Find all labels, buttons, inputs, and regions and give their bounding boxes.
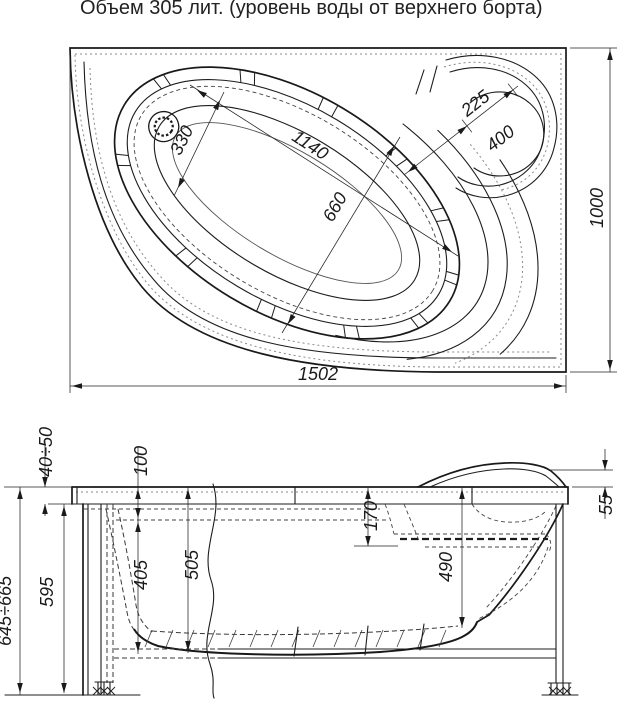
dimension-arrowhead	[17, 489, 23, 499]
dimension-arrowhead	[607, 360, 613, 370]
bottom-hatch-tick	[208, 630, 215, 647]
bottom-hatch-tick	[145, 630, 152, 647]
dimension-arrowhead	[135, 489, 141, 499]
bowl-segment-tick	[417, 314, 430, 324]
bowl-segment-tick	[235, 70, 247, 83]
bottom-hatch-tick	[250, 630, 257, 647]
dim-depth-at-drain-end: 490	[436, 552, 456, 582]
dim-bowl-width: 660	[319, 189, 351, 225]
channel-arc-dotted	[370, 144, 576, 375]
bowl-segment-tick	[317, 97, 325, 109]
dimension-arrowhead	[459, 617, 465, 627]
bowl-segment-tick	[151, 79, 164, 89]
dimension-arrowhead	[503, 88, 514, 99]
bowl-rim-outer	[67, 11, 506, 395]
bowl-segment-tick	[161, 74, 174, 85]
dim-overall-length: 1502	[298, 364, 338, 384]
dimension-arrowhead	[607, 50, 613, 60]
dim-seat-depth: 170	[361, 501, 381, 531]
bottom-hatch-tick	[397, 630, 404, 647]
bathtub-technical-drawing: Объем 305 лит. (уровень воды от верхнего…	[0, 0, 624, 704]
bottom-hatch-tick	[313, 630, 320, 647]
bottom-hatch-tick	[229, 630, 236, 647]
dim-body-height: 595	[37, 576, 57, 607]
headrest-hump-inner	[430, 469, 559, 487]
bowl-segment-tick	[352, 326, 365, 339]
dimension-arrowhead	[602, 460, 608, 470]
bowl-segment-tick	[331, 105, 338, 116]
bottom-hatch-tick	[376, 630, 383, 647]
headrest-pocket-hidden	[472, 504, 546, 522]
bowl-segment-tick	[115, 149, 128, 160]
bowl-bottom-hidden	[152, 626, 458, 635]
bowl-segment-tick	[446, 269, 458, 278]
dimension-arrowhead	[459, 489, 465, 499]
bowl-segment-ticks	[78, 17, 504, 393]
saddle-seam-2	[430, 66, 437, 92]
drawing-canvas: Объем 305 лит. (уровень воды от верхнего…	[0, 0, 624, 704]
dim-headrest-height: 55	[596, 494, 616, 515]
feet-hatch	[93, 687, 571, 695]
dimension-arrowhead	[61, 506, 67, 516]
dimension-arrowhead	[602, 487, 608, 497]
dim-bowl-length: 1140	[289, 126, 332, 164]
dimension-arrowhead	[365, 489, 371, 499]
bowl-segment-tick	[118, 160, 131, 171]
pocket-outer-dotted	[444, 62, 549, 190]
break-wave-line	[207, 484, 216, 698]
bowl-waterline	[95, 38, 479, 367]
bowl-segment-tick	[249, 72, 260, 85]
top-view-dimensions: 1140 330 660 225 400 1000 1502	[70, 48, 617, 393]
dim-overall-width: 1000	[587, 188, 607, 228]
dimension-arrowhead	[185, 489, 191, 499]
seat-front-hidden-1	[385, 504, 394, 534]
dimension-arrowhead	[365, 536, 371, 546]
bowl-segment-tick	[408, 318, 421, 328]
dimension-arrowhead	[61, 683, 67, 693]
bowl-segment-tick	[188, 256, 198, 269]
left-foot	[95, 682, 113, 695]
top-view: 1140 330 660 225 400 1000 1502	[67, 0, 617, 434]
dim-headrest-inner: 225	[457, 86, 495, 121]
dimension-arrowhead	[135, 642, 141, 652]
dimension-arrowhead	[42, 504, 48, 514]
dim-overall-height: 645÷665	[0, 575, 15, 646]
headrest-pocket	[416, 56, 557, 198]
channel-arc-1	[292, 124, 536, 389]
bowl-segment-tick	[255, 299, 263, 311]
seat-to-bottom-hidden	[478, 547, 548, 619]
drawing-title: Объем 305 лит. (уровень воды от верхнего…	[80, 0, 543, 19]
bottom-seam-2	[365, 626, 368, 655]
dimension-arrowhead	[42, 477, 48, 487]
tub-outer-contour	[70, 48, 566, 372]
bottom-hatch-tick	[334, 630, 341, 647]
tub-right-wall	[477, 504, 563, 622]
bowl-floor	[149, 91, 425, 314]
dim-total-depth: 505	[182, 549, 202, 580]
dimension-arrowhead	[554, 383, 564, 389]
bowl-segment-tick	[445, 278, 457, 286]
seat-front-hidden-2	[404, 504, 419, 541]
dimension-arrowhead	[442, 244, 453, 254]
dimension-arrowhead	[17, 683, 23, 693]
dim-drain-offset: 330	[166, 122, 197, 158]
bottom-hatch-tick	[271, 630, 278, 647]
tub-bottom-outer	[134, 622, 477, 655]
dimension-arrowhead	[135, 522, 141, 532]
bowl-segment-tick	[269, 306, 278, 318]
bottom-seam-3	[420, 624, 424, 650]
side-view: 40÷50 100 170 55 405 505 490 595 645÷665	[0, 427, 616, 698]
dim-rim-edge: 40÷50	[36, 427, 56, 477]
dimension-arrowhead	[135, 508, 141, 518]
saddle-seam-1	[416, 70, 424, 94]
dim-water-level: 100	[131, 446, 151, 476]
dimension-arrowhead	[72, 383, 82, 389]
dim-headrest-outer: 400	[482, 121, 518, 155]
tub-right-wall-hidden	[486, 506, 556, 608]
dim-water-to-bottom: 405	[131, 559, 151, 590]
